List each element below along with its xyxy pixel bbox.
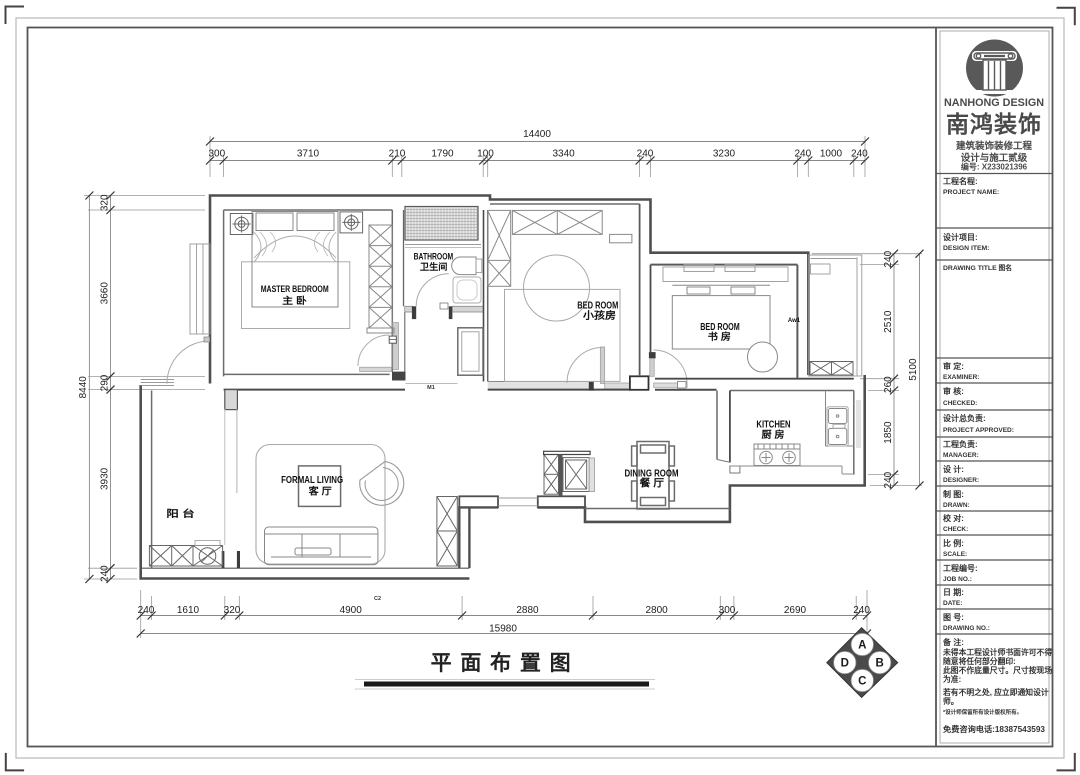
svg-text:3660: 3660 <box>100 282 111 305</box>
svg-text:4900: 4900 <box>340 605 363 616</box>
svg-text:此图不作底量尺寸。尺寸按现场: 此图不作底量尺寸。尺寸按现场 <box>943 665 1052 675</box>
svg-text:240: 240 <box>138 605 155 616</box>
svg-text:随意将任何部分翻印:: 随意将任何部分翻印: <box>943 656 1016 666</box>
svg-text:图 号:: 图 号: <box>943 613 964 622</box>
svg-text:240: 240 <box>883 250 894 267</box>
svg-text:240: 240 <box>851 149 868 160</box>
svg-text:校 对:: 校 对: <box>943 513 964 523</box>
svg-text:NANHONG DESIGN: NANHONG DESIGN <box>944 97 1044 109</box>
svg-text:M1: M1 <box>427 385 435 391</box>
svg-text:未得本工程设计师书面许可不得: 未得本工程设计师书面许可不得 <box>942 647 1052 657</box>
svg-text:15980: 15980 <box>489 624 517 635</box>
svg-text:DATE:: DATE: <box>943 600 962 607</box>
svg-text:8440: 8440 <box>78 376 89 399</box>
svg-text:1790: 1790 <box>431 149 454 160</box>
svg-text:比 例:: 比 例: <box>943 538 964 548</box>
svg-text:D: D <box>841 658 849 670</box>
svg-text:工程负责:: 工程负责: <box>943 439 978 449</box>
svg-text:14400: 14400 <box>523 129 551 140</box>
svg-text:备 注:: 备 注: <box>942 637 964 647</box>
svg-text:为准:: 为准: <box>943 674 961 684</box>
svg-text:MASTER BEDROOM: MASTER BEDROOM <box>261 284 329 295</box>
svg-text:Aw1: Aw1 <box>788 318 801 324</box>
svg-text:3230: 3230 <box>713 149 736 160</box>
svg-text:3930: 3930 <box>100 467 111 490</box>
svg-text:240: 240 <box>883 471 894 488</box>
svg-text:主 卧: 主 卧 <box>282 295 307 307</box>
svg-text:5100: 5100 <box>908 358 919 381</box>
svg-text:EXAMINER:: EXAMINER: <box>943 374 979 381</box>
svg-text:2510: 2510 <box>883 310 894 333</box>
svg-text:建筑装饰装修工程: 建筑装饰装修工程 <box>955 140 1033 152</box>
svg-text:CHECK:: CHECK: <box>943 526 968 533</box>
svg-text:DRAWN:: DRAWN: <box>943 502 970 509</box>
svg-text:3710: 3710 <box>297 149 320 160</box>
svg-text:书 房: 书 房 <box>708 331 731 343</box>
svg-text:240: 240 <box>100 565 111 582</box>
svg-text:工程编号:: 工程编号: <box>943 563 978 573</box>
svg-text:PROJECT APPROVED:: PROJECT APPROVED: <box>943 427 1014 434</box>
svg-text:PROJECT NAME:: PROJECT NAME: <box>943 189 999 196</box>
svg-text:2690: 2690 <box>784 605 807 616</box>
svg-text:客 厅: 客 厅 <box>308 486 333 498</box>
svg-text:260: 260 <box>883 376 894 393</box>
svg-text:2800: 2800 <box>645 605 668 616</box>
svg-text:320: 320 <box>224 605 241 616</box>
svg-text:2880: 2880 <box>516 605 539 616</box>
svg-text:卫生间: 卫生间 <box>420 261 448 272</box>
svg-text:设计总负责:: 设计总负责: <box>943 413 986 423</box>
svg-text:BATHROOM: BATHROOM <box>414 252 454 263</box>
svg-text:设 计:: 设 计: <box>943 464 964 474</box>
svg-text:师。: 师。 <box>943 696 959 706</box>
svg-text:免费咨询电话:18387543593: 免费咨询电话:18387543593 <box>943 724 1045 734</box>
svg-text:1850: 1850 <box>883 421 894 444</box>
svg-text:B: B <box>876 658 884 670</box>
svg-text:审 定:: 审 定: <box>943 361 964 371</box>
svg-text:FORMAL LIVING: FORMAL LIVING <box>281 475 343 486</box>
svg-text:设计项目:: 设计项目: <box>943 232 978 242</box>
svg-text:餐 厅: 餐 厅 <box>639 477 664 490</box>
svg-text:210: 210 <box>389 149 406 160</box>
svg-text:MANAGER:: MANAGER: <box>943 452 979 459</box>
svg-text:300: 300 <box>208 149 225 160</box>
svg-text:BED ROOM: BED ROOM <box>577 300 618 311</box>
svg-text:南鸿装饰: 南鸿装饰 <box>946 111 1042 137</box>
svg-text:3340: 3340 <box>552 149 575 160</box>
svg-text:DESIGN ITEM:: DESIGN ITEM: <box>943 245 989 252</box>
svg-text:1000: 1000 <box>820 149 843 160</box>
svg-text:240: 240 <box>853 605 870 616</box>
svg-text:DESIGNER:: DESIGNER: <box>943 477 979 484</box>
svg-text:若有不明之处, 应立即通知设计: 若有不明之处, 应立即通知设计 <box>942 687 1049 697</box>
svg-text:300: 300 <box>719 605 736 616</box>
svg-text:A: A <box>858 640 866 652</box>
svg-text:阳 台: 阳 台 <box>166 508 195 520</box>
svg-text:厨 房: 厨 房 <box>762 429 785 441</box>
svg-text:C: C <box>858 676 866 688</box>
svg-text:工程名程:: 工程名程: <box>943 176 978 186</box>
svg-text:240: 240 <box>637 149 654 160</box>
svg-text:JOB NO.:: JOB NO.: <box>943 576 972 583</box>
svg-text:DRAWING TITLE 图名: DRAWING TITLE 图名 <box>943 263 1012 272</box>
svg-text:编号: X233021396: 编号: X233021396 <box>961 162 1028 172</box>
svg-text:日 期:: 日 期: <box>943 587 964 597</box>
svg-text:小孩房: 小孩房 <box>582 309 616 322</box>
svg-text:1610: 1610 <box>177 605 200 616</box>
svg-text:C2: C2 <box>374 596 381 602</box>
svg-text:100: 100 <box>477 149 494 160</box>
svg-text:平面布置图: 平面布置图 <box>431 651 580 675</box>
svg-text:审 核:: 审 核: <box>943 386 964 396</box>
svg-text:320: 320 <box>100 194 111 211</box>
svg-text:CHECKED:: CHECKED: <box>943 400 977 407</box>
svg-text:SCALE:: SCALE: <box>943 551 967 558</box>
svg-text:*设计师保留所有设计版权所有。: *设计师保留所有设计版权所有。 <box>943 708 1022 716</box>
svg-text:制 图:: 制 图: <box>943 489 964 499</box>
svg-text:240: 240 <box>794 149 811 160</box>
svg-text:DRAWING NO.:: DRAWING NO.: <box>943 625 990 632</box>
svg-text:290: 290 <box>100 374 111 391</box>
